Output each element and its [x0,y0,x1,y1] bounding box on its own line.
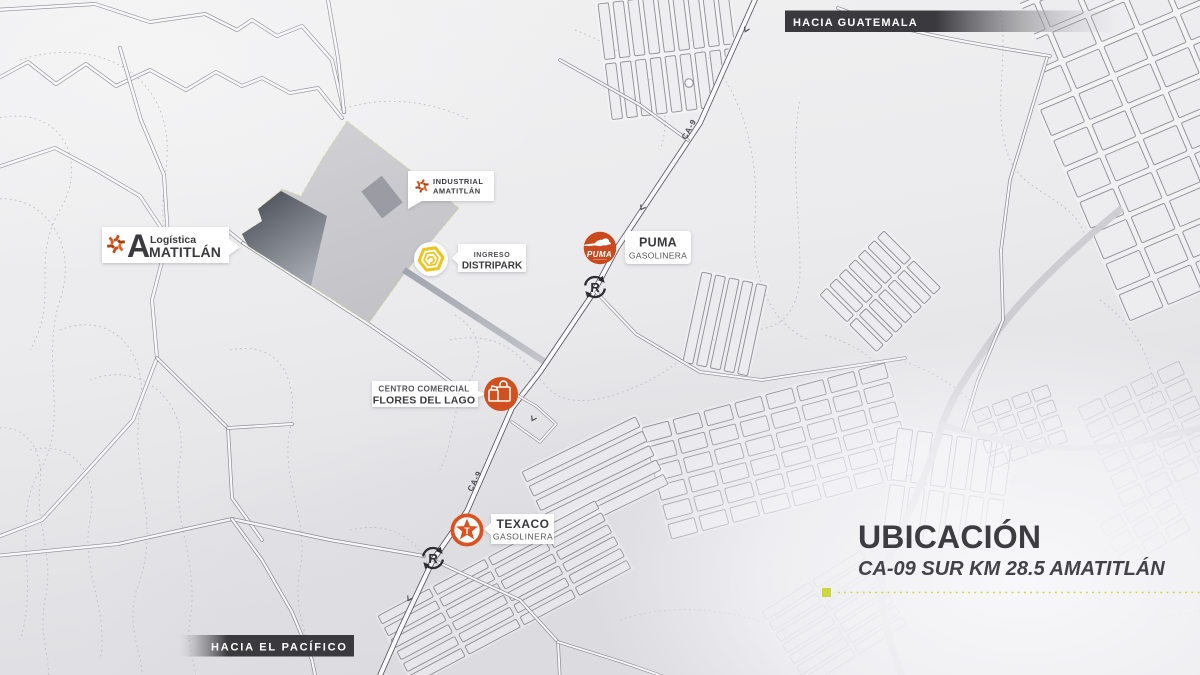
svg-text:PUMA: PUMA [587,250,612,259]
svg-text:DISTRIPARK: DISTRIPARK [462,261,523,272]
svg-text:HACIA GUATEMALA: HACIA GUATEMALA [793,17,918,29]
svg-text:HACIA EL PACÍFICO: HACIA EL PACÍFICO [211,641,348,654]
svg-text:UBICACIÓN: UBICACIÓN [858,519,1041,555]
svg-text:PUMA: PUMA [639,236,677,250]
svg-text:INDUSTRIAL: INDUSTRIAL [433,177,483,186]
svg-text:FLORES DEL LAGO: FLORES DEL LAGO [373,395,476,407]
svg-text:GASOLINERA: GASOLINERA [629,251,687,261]
svg-text:R: R [428,551,438,566]
svg-text:INGRESO: INGRESO [474,252,510,259]
svg-text:CA-09 SUR KM 28.5 AMATITLÁN: CA-09 SUR KM 28.5 AMATITLÁN [858,557,1165,580]
svg-text:TEXACO: TEXACO [496,517,549,531]
svg-text:CENTRO COMERCIAL: CENTRO COMERCIAL [378,385,469,394]
svg-text:R: R [590,280,600,295]
svg-text:AMATITLÁN: AMATITLÁN [433,187,481,196]
svg-text:GASOLINERA: GASOLINERA [493,532,553,542]
svg-text:T: T [464,526,470,536]
svg-text:A: A [127,228,150,264]
svg-text:MATITLÁN: MATITLÁN [149,244,221,260]
